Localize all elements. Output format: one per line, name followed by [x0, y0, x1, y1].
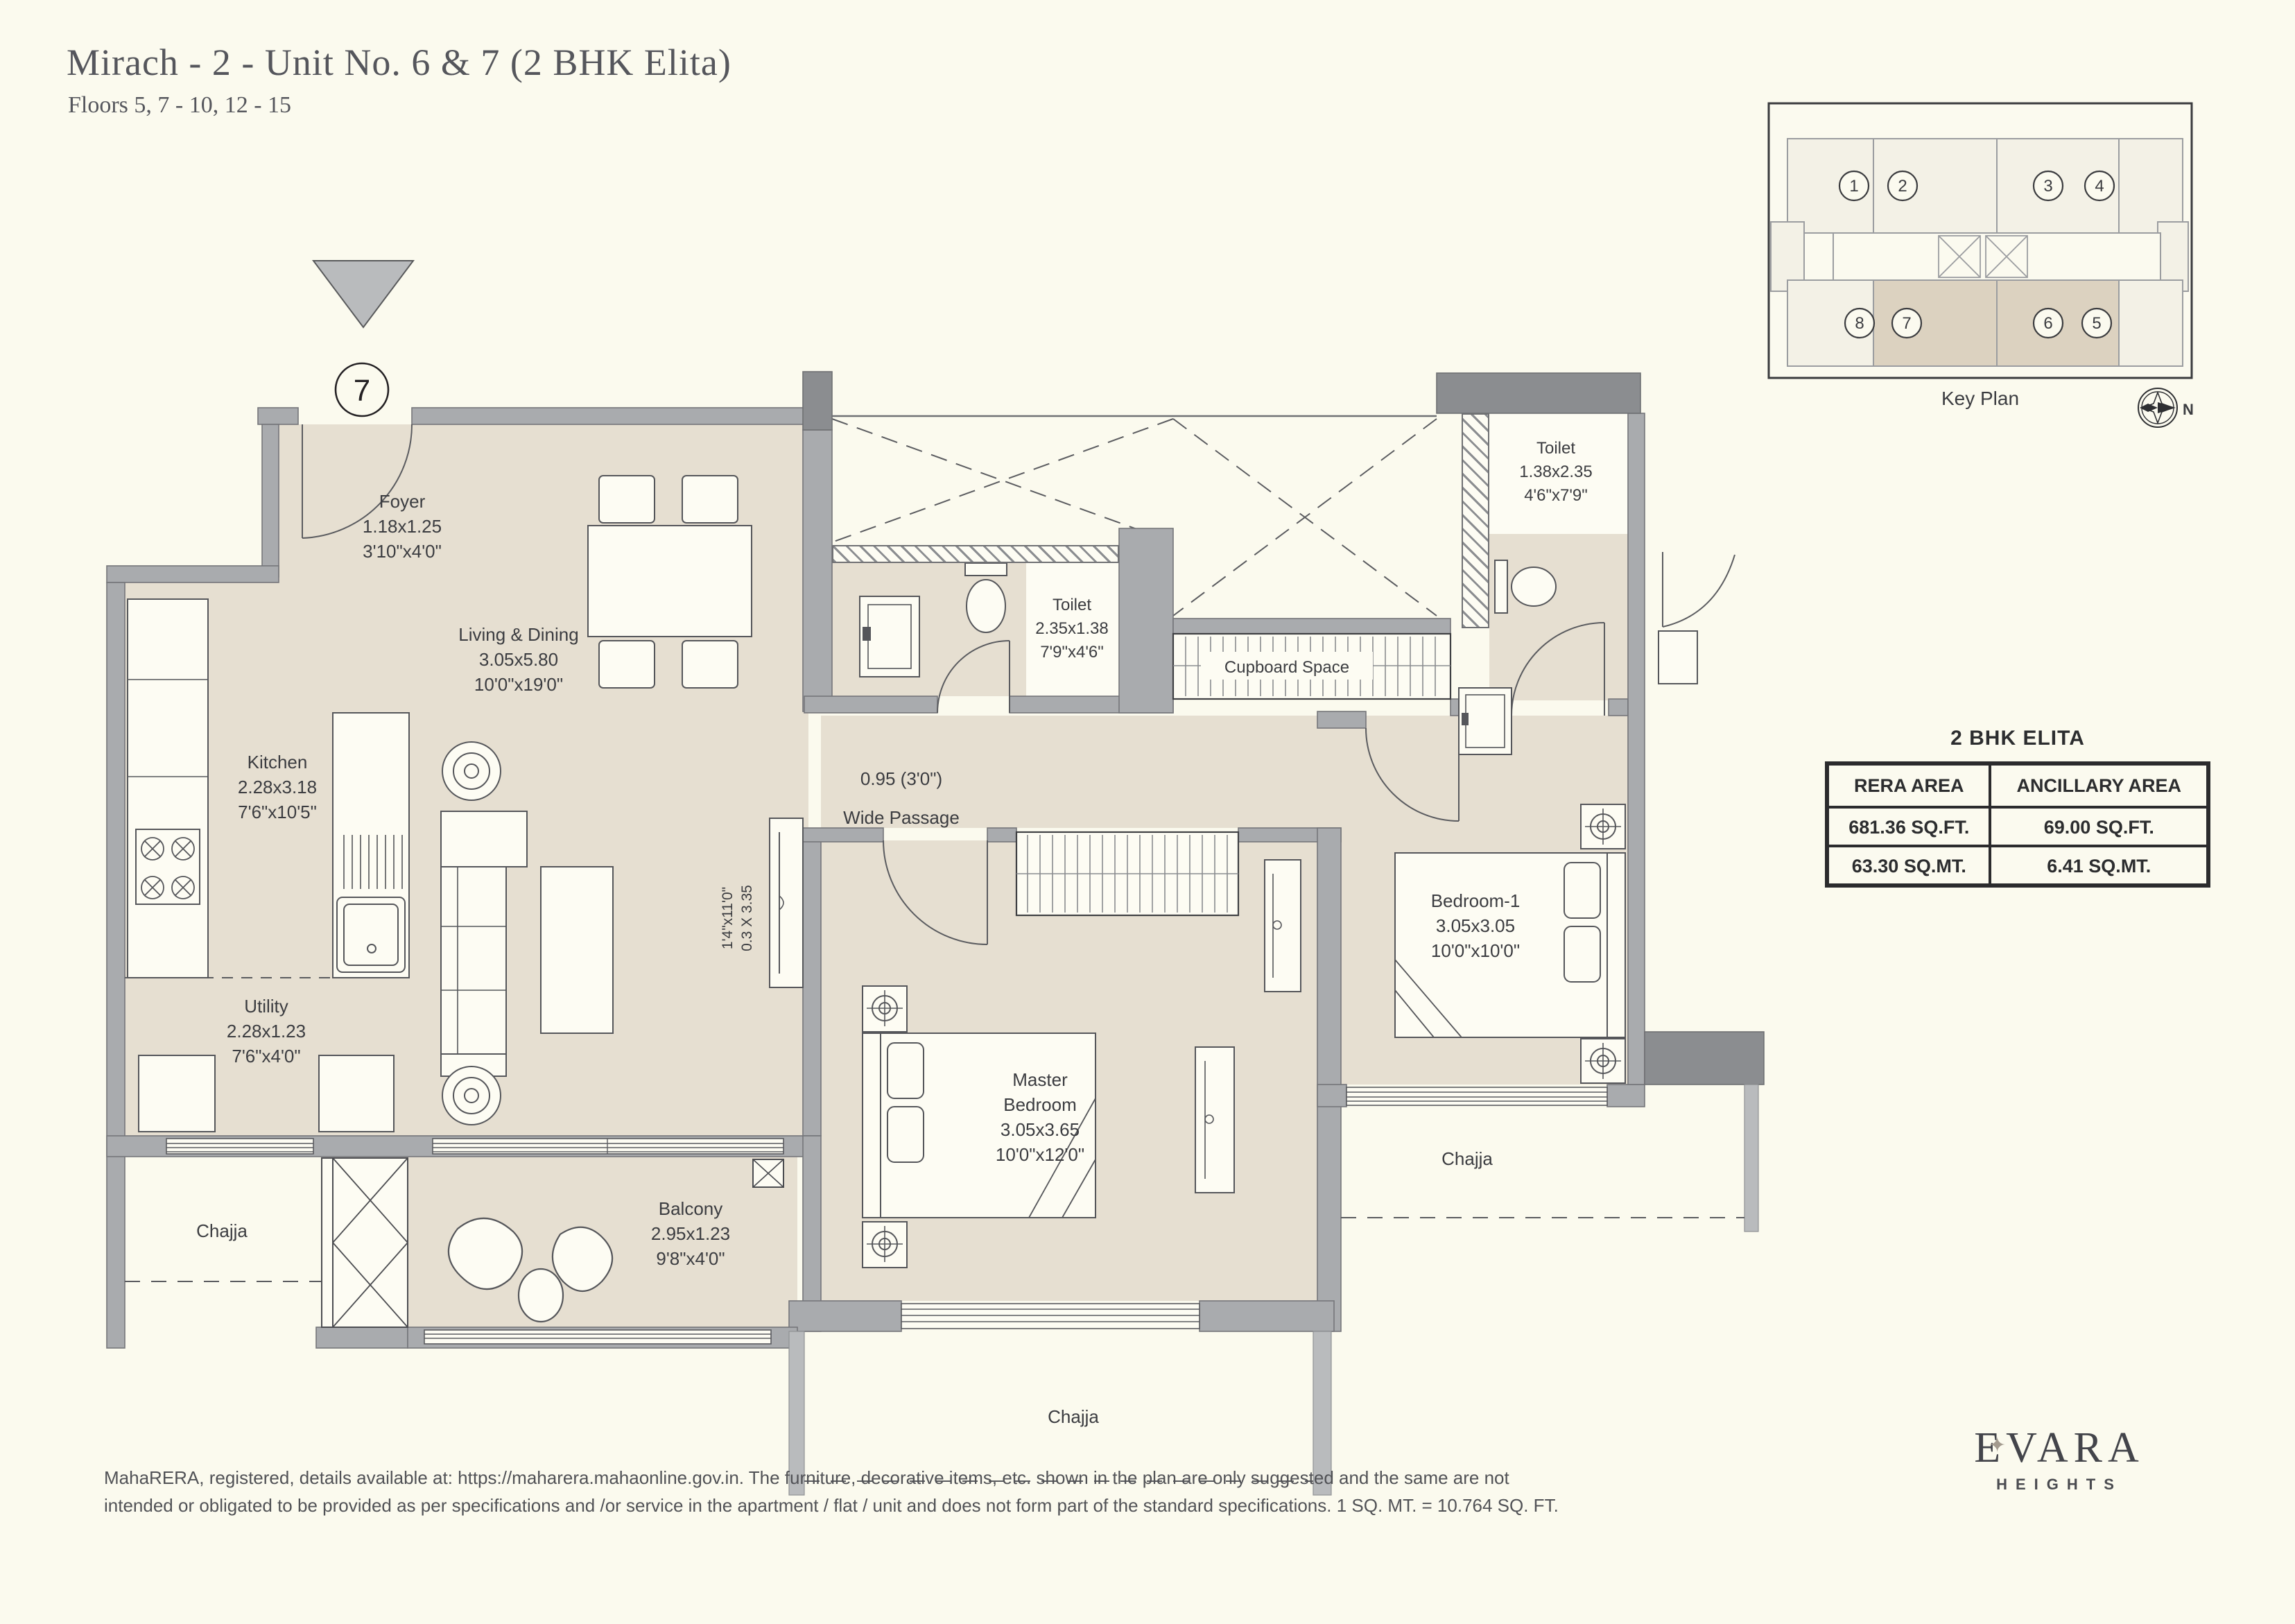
label-bedroom1: Bedroom-1 [1431, 890, 1521, 911]
tv-unit [770, 818, 803, 987]
key-unit-2: 2 [1898, 177, 1907, 196]
label-foyer-m: 1.18x1.25 [363, 516, 442, 537]
area-table: 2 BHK ELITA RERA AREA ANCILLARY AREA 681… [1825, 727, 2210, 888]
label-master-2: Bedroom [1003, 1094, 1077, 1115]
utility-unit-1 [139, 1055, 215, 1132]
area-table-header-ancillary: ANCILLARY AREA [1991, 764, 2208, 807]
unit-number: 7 [354, 374, 370, 408]
label-kitchen-m: 2.28x3.18 [238, 777, 317, 797]
key-plan: 1 2 3 4 8 7 6 5 Key Plan N [1769, 103, 2194, 427]
label-master-m: 3.05x3.65 [1001, 1119, 1080, 1140]
key-unit-3: 3 [2043, 177, 2052, 196]
balcony-railing [424, 1330, 771, 1344]
label-foyer: Foyer [379, 491, 426, 512]
unit-marker: 7 [313, 261, 413, 416]
label-utility-m: 2.28x1.23 [227, 1021, 306, 1042]
label-toilet-mid: Toilet [1053, 596, 1091, 614]
key-unit-6: 6 [2043, 314, 2052, 333]
label-passage-width: 0.95 (3'0") [860, 768, 942, 789]
star-icon: ✦ [1989, 1433, 2011, 1459]
bedroom1-dresser [1265, 860, 1301, 992]
label-toilet-top-ft: 4'6"x7'9" [1524, 486, 1588, 505]
master-window [901, 1304, 1200, 1329]
label-toilet-top-m: 1.38x2.35 [1519, 463, 1592, 481]
ancillary-area-sqft: 69.00 SQ.FT. [1991, 807, 2208, 846]
label-master-1: Master [1012, 1069, 1068, 1090]
ancillary-area-sqmt: 6.41 SQ.MT. [1991, 846, 2208, 885]
label-balcony-m: 2.95x1.23 [651, 1223, 730, 1244]
shaft-hatch-vertical [1462, 413, 1489, 628]
label-toilet-top: Toilet [1536, 439, 1575, 458]
label-cupboard: Cupboard Space [1224, 658, 1349, 677]
label-toilet-mid-m: 2.35x1.38 [1035, 619, 1108, 638]
label-balcony: Balcony [659, 1198, 723, 1219]
area-table-title: 2 BHK ELITA [1825, 727, 2210, 750]
label-passage: Wide Passage [843, 807, 960, 828]
disclaimer-line-1: MahaRERA, registered, details available … [104, 1465, 1595, 1492]
kitchen-sink [337, 897, 405, 972]
label-foyer-ft: 3'10"x4'0" [363, 541, 442, 562]
balcony-slider [433, 1139, 783, 1154]
shaft-hatch-horizontal [832, 545, 1119, 563]
logo-subtitle: HEIGHTS [1972, 1477, 2147, 1494]
brand-logo: EVARA ✦ HEIGHTS [1972, 1423, 2147, 1494]
wc-mid [965, 563, 1007, 632]
key-unit-1: 1 [1849, 177, 1858, 196]
kitchen-window [166, 1139, 313, 1154]
label-chajja-left: Chajja [196, 1220, 248, 1241]
key-unit-5: 5 [2092, 314, 2101, 333]
page-subtitle: Floors 5, 7 - 10, 12 - 15 [68, 92, 291, 119]
utility-unit-2 [319, 1055, 394, 1132]
label-utility-ft: 7'6"x4'0" [232, 1046, 300, 1066]
rera-area-sqft: 681.36 SQ.FT. [1828, 807, 1991, 846]
balcony-table [519, 1269, 563, 1322]
label-niche-m: 0.3 X 3.35 [739, 885, 755, 951]
master-dresser [1195, 1047, 1234, 1193]
label-chajja-right: Chajja [1441, 1148, 1493, 1169]
master-wardrobe [1016, 832, 1238, 915]
label-kitchen: Kitchen [248, 752, 308, 772]
bedroom1-window [1346, 1087, 1607, 1105]
label-chajja-bottom: Chajja [1048, 1406, 1099, 1427]
label-master-ft: 10'0"x12'0" [996, 1144, 1084, 1165]
area-table-header-rera: RERA AREA [1828, 764, 1991, 807]
key-plan-label: Key Plan [1941, 388, 2019, 409]
label-bedroom1-m: 3.05x3.05 [1436, 915, 1515, 936]
key-unit-8: 8 [1855, 314, 1864, 333]
stove [136, 829, 200, 904]
balcony-duct-box [753, 1159, 783, 1187]
compass-north-label: N [2183, 401, 2194, 418]
label-living-ft: 10'0"x19'0" [474, 674, 563, 695]
label-niche-ft: 1'4"x11'0" [720, 887, 736, 949]
washbasin-neighbour [1659, 631, 1697, 684]
label-living-m: 3.05x5.80 [479, 649, 558, 670]
duct-shaft [322, 1158, 408, 1327]
key-unit-7: 7 [1902, 314, 1911, 333]
rera-area-sqmt: 63.30 SQ.MT. [1828, 846, 1991, 885]
label-bedroom1-ft: 10'0"x10'0" [1431, 940, 1520, 961]
compass-icon [2138, 388, 2177, 427]
key-unit-4: 4 [2095, 177, 2104, 196]
label-living: Living & Dining [458, 624, 578, 645]
label-toilet-mid-ft: 7'9"x4'6" [1040, 643, 1104, 662]
coffee-table [541, 867, 613, 1033]
label-kitchen-ft: 7'6"x10'5" [238, 802, 317, 822]
logo-wordmark: EVARA ✦ [1972, 1423, 2147, 1473]
neighbour-door [1663, 552, 1735, 627]
label-balcony-ft: 9'8"x4'0" [656, 1248, 725, 1269]
disclaimer-line-2: intended or obligated to be provided as … [104, 1492, 1595, 1520]
page-title: Mirach - 2 - Unit No. 6 & 7 (2 BHK Elita… [67, 42, 731, 85]
disclaimer: MahaRERA, registered, details available … [104, 1465, 1595, 1520]
label-utility: Utility [244, 996, 288, 1017]
